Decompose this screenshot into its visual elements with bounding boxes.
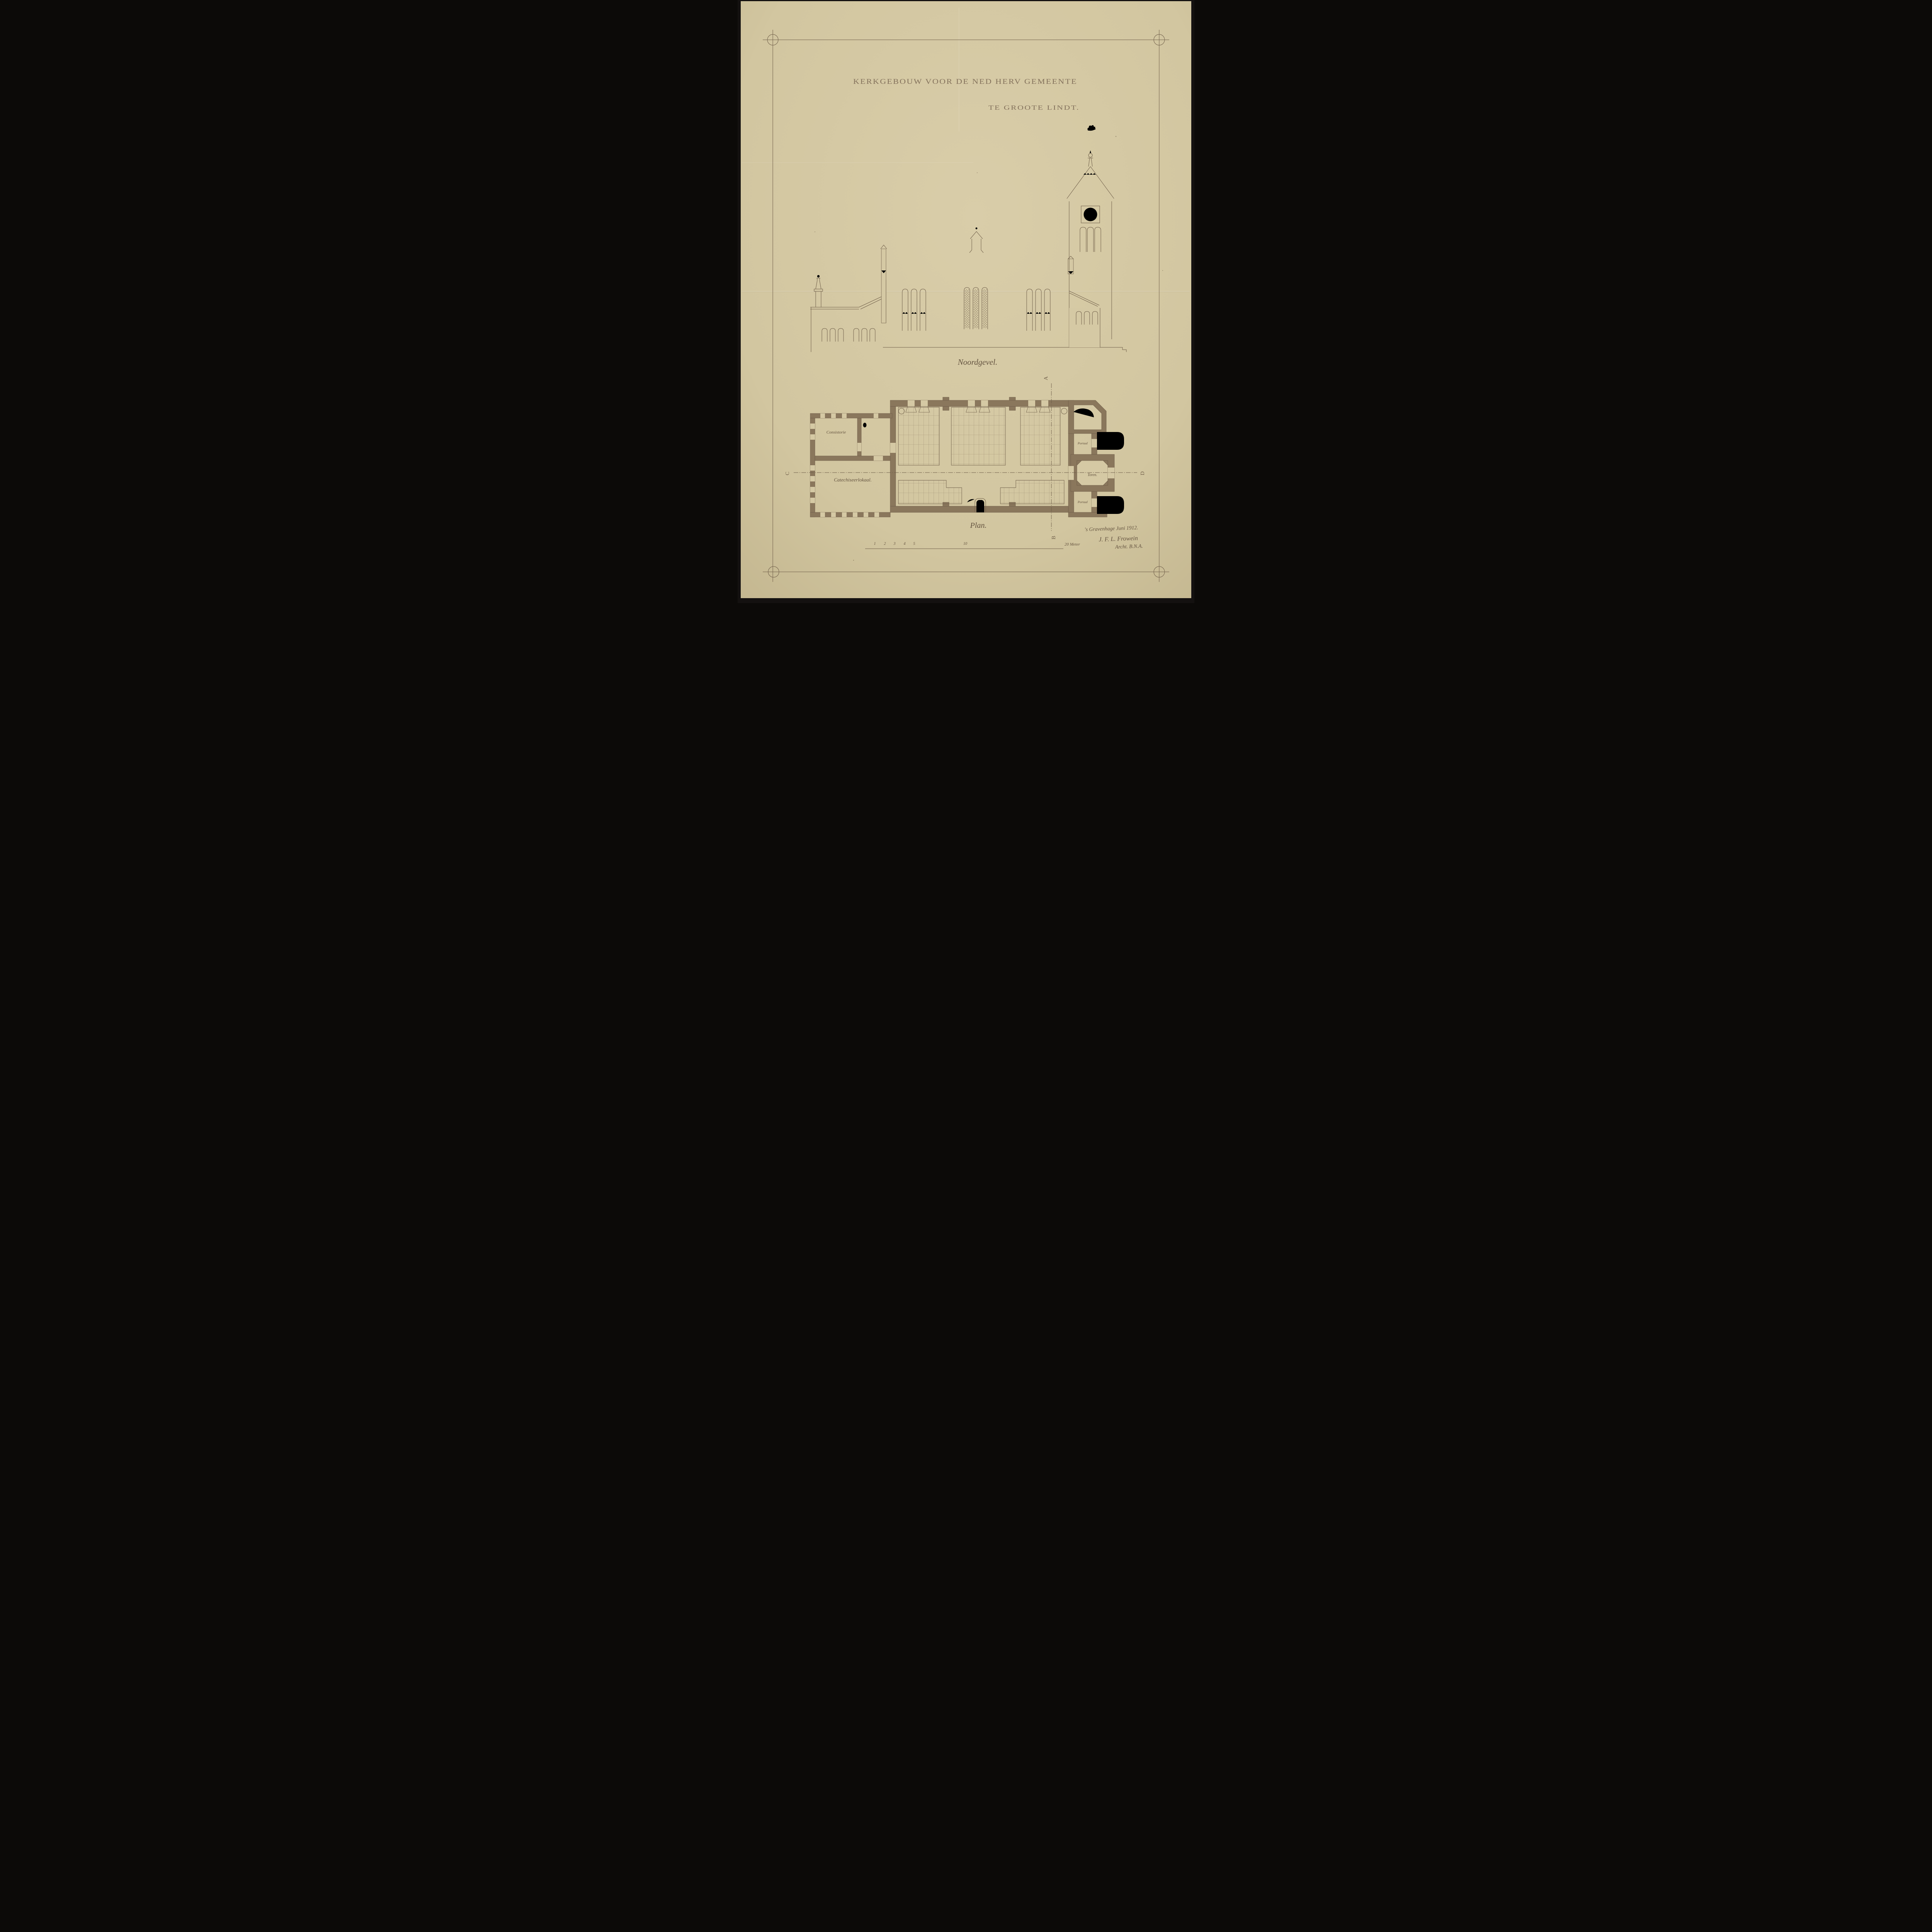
- signature-architect: J. F. L. Frowein: [1099, 535, 1138, 543]
- scale-tick-3: 3: [893, 542, 896, 546]
- scanned-drawing-sheet: KERKGEBOUW VOOR DE NED HERV GEMEENTE TE …: [738, 0, 1194, 603]
- pew-block: [1020, 407, 1060, 465]
- section-marker-a: A: [1043, 376, 1049, 380]
- elevation-caption: Noordgevel.: [955, 357, 1004, 368]
- plan-caption: Plan.: [968, 521, 989, 531]
- noordgevel-label: Noordgevel.: [957, 357, 997, 367]
- pew-block: [898, 407, 939, 465]
- consistorie-label: Consistorie: [827, 430, 846, 435]
- portaal-south-label: Portaal: [1077, 500, 1088, 504]
- plan-label: Plan.: [970, 521, 987, 530]
- section-marker-c: C: [785, 472, 791, 475]
- portaal-north-label: Portaal: [1077, 441, 1088, 445]
- scale-tick-5: 5: [913, 542, 915, 546]
- title-line-1: KERKGEBOUW VOOR DE NED HERV GEMEENTE: [853, 78, 1077, 86]
- section-marker-d: D: [1140, 471, 1146, 475]
- blueprint-svg: KERKGEBOUW VOOR DE NED HERV GEMEENTE TE …: [738, 0, 1194, 603]
- scale-end-label: 20 Meter: [1065, 542, 1080, 547]
- scale-tick-10: 10: [963, 542, 967, 546]
- scale-tick-1: 1: [874, 542, 876, 546]
- scale-tick-4: 4: [904, 542, 906, 546]
- signature-credential: Archt. B.N.A.: [1115, 543, 1143, 550]
- catechiseerlokaal-label: Catechiseerlokaal.: [834, 477, 872, 483]
- pew-block: [951, 407, 1005, 465]
- title-line-2: TE GROOTE LINDT.: [988, 104, 1080, 111]
- scale-tick-2: 2: [884, 542, 886, 546]
- toren-label: Toren.: [1087, 473, 1097, 477]
- section-marker-b: B: [1051, 536, 1057, 539]
